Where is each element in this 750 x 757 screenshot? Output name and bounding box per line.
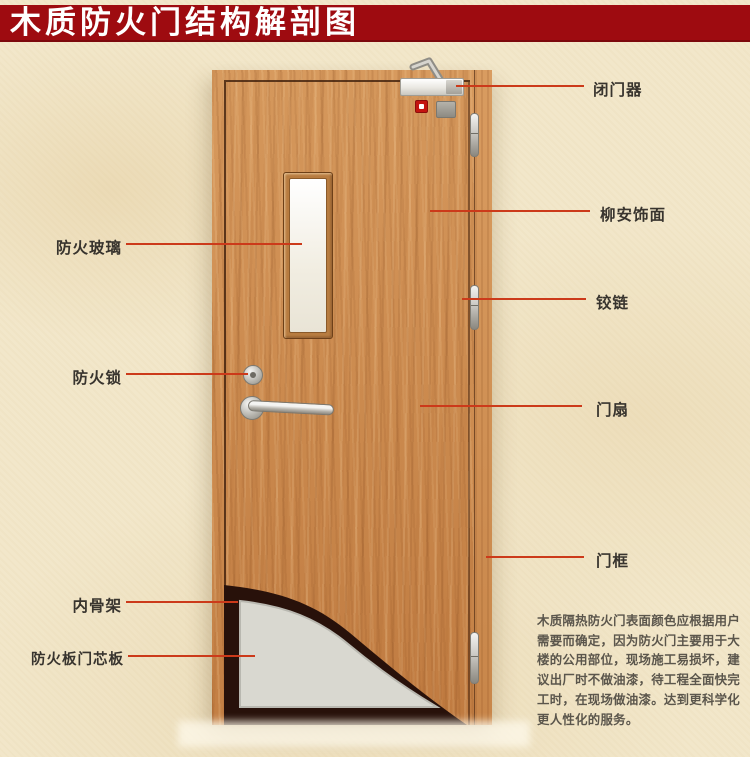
door-closer-body <box>400 78 464 96</box>
description-line: 需要而确定，因为防火门主要用于大 <box>537 632 743 652</box>
title-banner: 木质防火门结构解剖图 <box>0 5 750 42</box>
description-line: 工时，在现场做油漆。达到更科学化 <box>537 691 743 711</box>
callout-label-inner-skeleton: 内骨架 <box>38 594 122 616</box>
callout-label-lauan-veneer: 柳安饰面 <box>600 203 666 225</box>
core-panel-cutaway <box>240 601 437 707</box>
callout-label-fire-board-core: 防火板门芯板 <box>18 648 124 669</box>
description-line: 楼的公用部位，现场施工易损坏，建 <box>537 651 743 671</box>
callout-label-door-closer: 闭门器 <box>593 78 643 100</box>
description-line: 更人性化的服务。 <box>537 711 743 731</box>
callout-line-fire-board-core <box>128 655 255 657</box>
window-frame <box>283 172 333 339</box>
fire-lock-cylinder <box>243 365 263 385</box>
hinge-middle <box>470 285 479 330</box>
description-paragraph: 木质隔热防火门表面颜色应根据用户 需要而确定，因为防火门主要用于大 楼的公用部位… <box>537 612 743 730</box>
callout-line-inner-skeleton <box>126 601 238 603</box>
callout-label-door-leaf: 门扇 <box>596 398 629 420</box>
callout-line-hinge <box>462 298 586 300</box>
callout-label-door-frame: 门框 <box>596 549 629 571</box>
callout-line-lauan-veneer <box>430 210 590 212</box>
callout-line-door-leaf <box>420 405 582 407</box>
floor-highlight <box>178 721 530 747</box>
door-illustration <box>212 70 492 725</box>
callout-label-fireproof-glass: 防火玻璃 <box>38 236 122 258</box>
callout-line-door-frame <box>486 556 584 558</box>
fireproof-glass <box>289 178 327 333</box>
door-closer-bracket <box>436 101 456 118</box>
hinge-top <box>470 113 479 157</box>
callout-line-door-closer <box>456 85 584 87</box>
fire-rating-sticker <box>415 100 428 113</box>
door-frame-right <box>474 70 492 725</box>
door-closer <box>396 54 468 124</box>
callout-label-hinge: 铰链 <box>596 291 629 313</box>
description-line: 议出厂时不做油漆，待工程全面快完 <box>537 671 743 691</box>
callout-line-fireproof-glass <box>126 243 302 245</box>
callout-line-fire-lock <box>126 373 248 375</box>
door-closer-cap <box>446 80 462 94</box>
page-background: 木质防火门结构解剖图 防火玻 <box>0 0 750 757</box>
description-line: 木质隔热防火门表面颜色应根据用户 <box>537 612 743 632</box>
cutaway-section <box>224 575 472 725</box>
page-title: 木质防火门结构解剖图 <box>0 5 750 40</box>
callout-label-fire-lock: 防火锁 <box>38 366 122 388</box>
